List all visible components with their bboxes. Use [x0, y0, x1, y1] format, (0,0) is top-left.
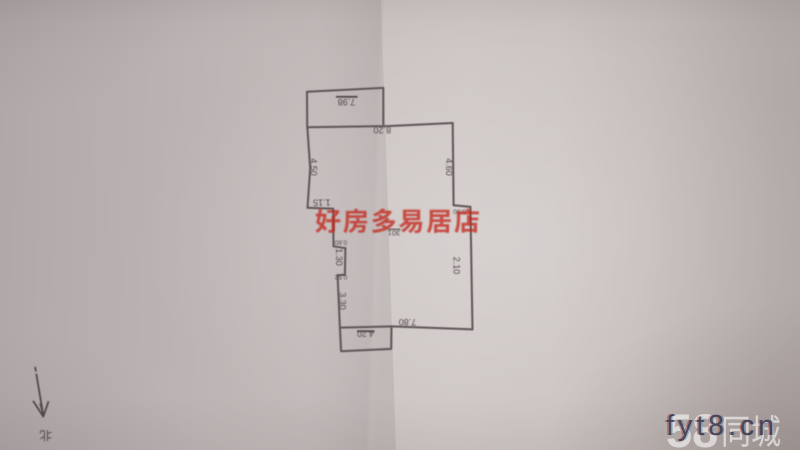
svg-text:2.10: 2.10 [452, 257, 462, 275]
svg-text:7.80: 7.80 [399, 317, 417, 327]
svg-text:1.30: 1.30 [334, 248, 344, 266]
svg-text:fyt8.cn: fyt8.cn [666, 410, 778, 442]
svg-text:8.20: 8.20 [374, 125, 392, 135]
svg-text:1.15: 1.15 [313, 197, 331, 207]
svg-text:0.52: 0.52 [334, 273, 347, 280]
svg-text:4.60: 4.60 [444, 158, 454, 176]
svg-text:4.50: 4.50 [309, 158, 319, 176]
svg-text:7.98: 7.98 [338, 97, 356, 107]
svg-text:0.60: 0.60 [334, 239, 347, 246]
svg-text:3.30: 3.30 [337, 292, 347, 310]
